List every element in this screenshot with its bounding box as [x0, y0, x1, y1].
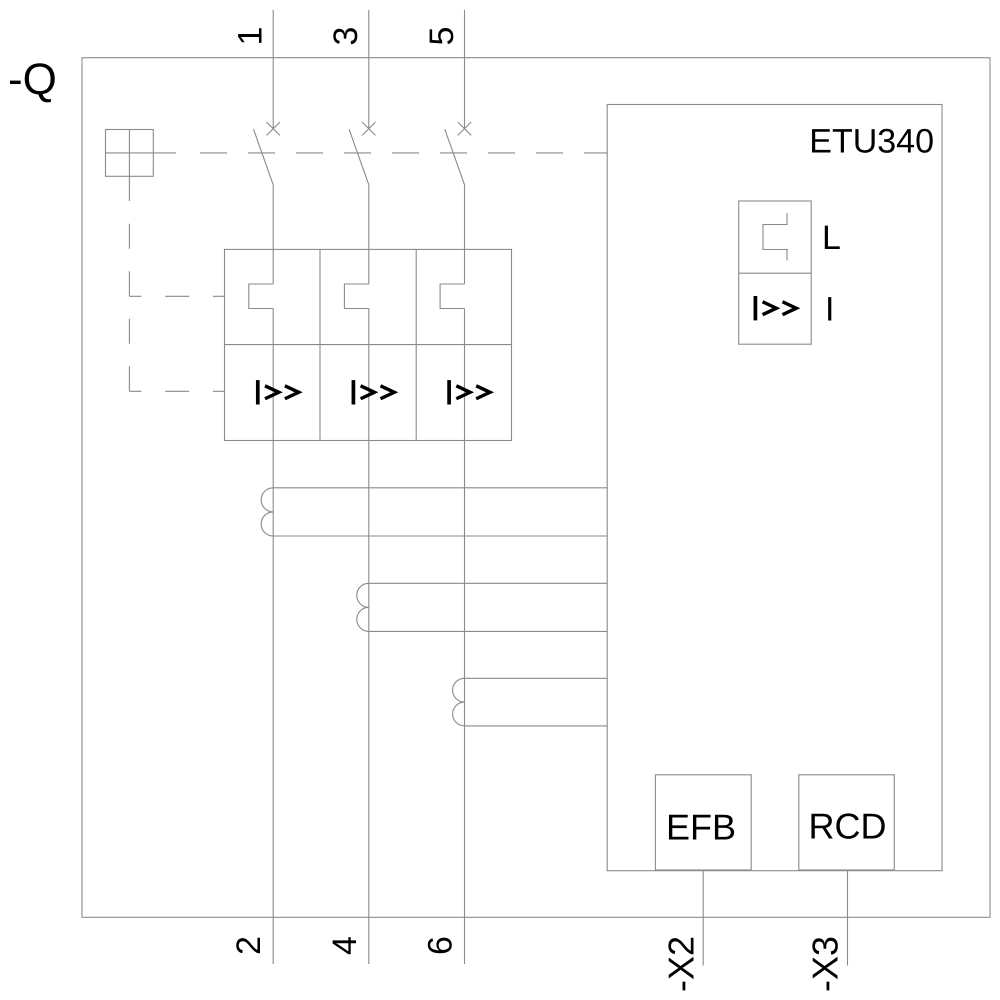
svg-text:3: 3	[327, 27, 365, 46]
svg-text:-X3: -X3	[805, 936, 846, 992]
svg-text:4: 4	[326, 936, 364, 955]
svg-text:ETU340: ETU340	[809, 123, 934, 161]
svg-text:-X2: -X2	[660, 936, 701, 992]
svg-text:EFB: EFB	[666, 807, 736, 848]
svg-text:2: 2	[230, 936, 268, 955]
svg-text:RCD: RCD	[809, 805, 887, 846]
svg-text:1: 1	[232, 27, 270, 46]
svg-text:L: L	[822, 219, 841, 257]
svg-text:5: 5	[423, 27, 461, 46]
svg-text:6: 6	[422, 936, 460, 955]
svg-text:I: I	[825, 290, 834, 328]
svg-text:-Q: -Q	[8, 55, 57, 104]
